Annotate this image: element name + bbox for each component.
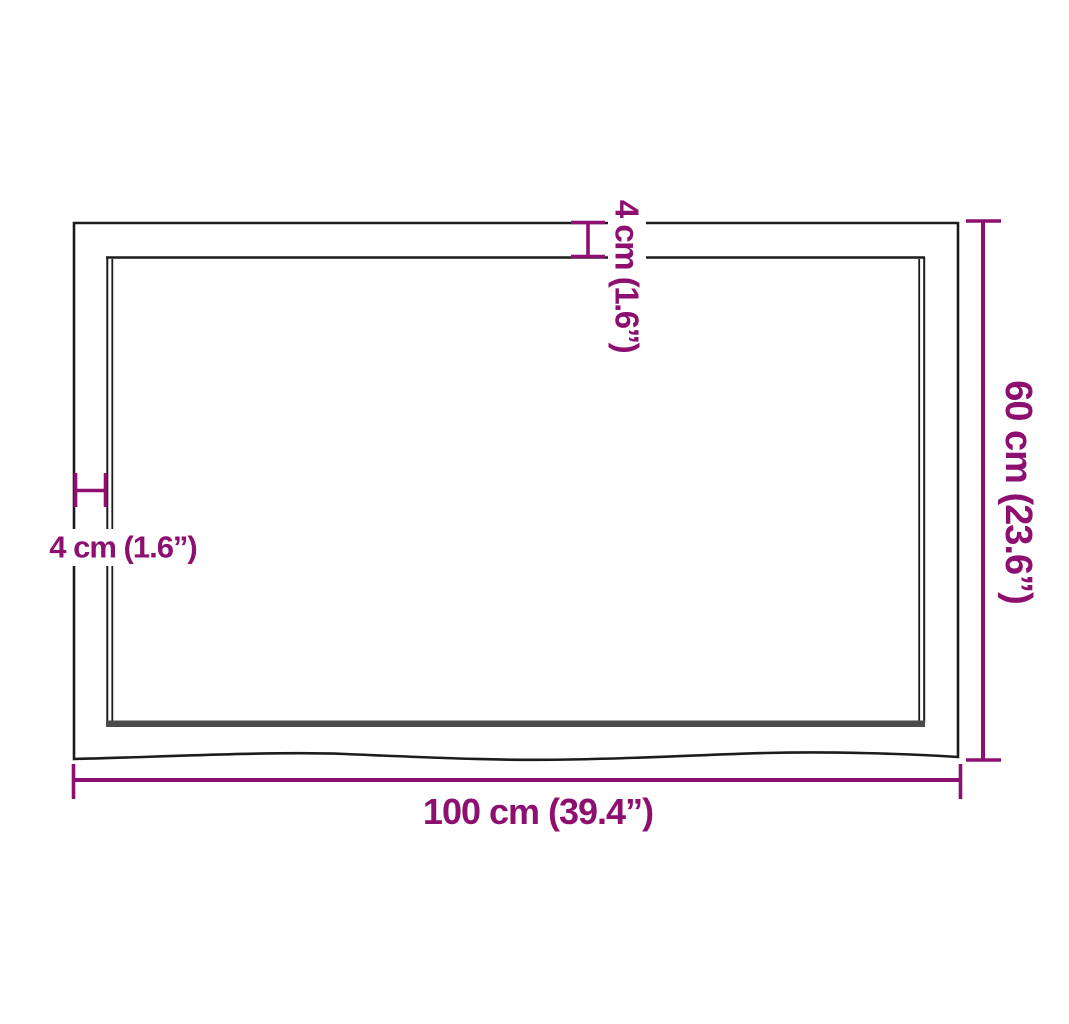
width-label: 100 cm (39.4”): [423, 794, 653, 830]
diagram-linework: [0, 0, 1069, 1024]
height-label: 60 cm (23.6”): [999, 380, 1037, 604]
left-thickness-label: 4 cm (1.6”): [49, 532, 197, 563]
top-thickness-dimension-marker: [571, 222, 605, 257]
left-thickness-dimension-marker: [75, 473, 106, 507]
tabletop-inner-bottom-edge: [106, 721, 925, 728]
top-thickness-label: 4 cm (1.6”): [611, 200, 644, 352]
height-dimension-line: [966, 221, 1001, 760]
tabletop-outer-outline: [74, 223, 958, 760]
dimension-diagram: 4 cm (1.6”) 4 cm (1.6”) 60 cm (23.6”) 10…: [0, 0, 1069, 1024]
